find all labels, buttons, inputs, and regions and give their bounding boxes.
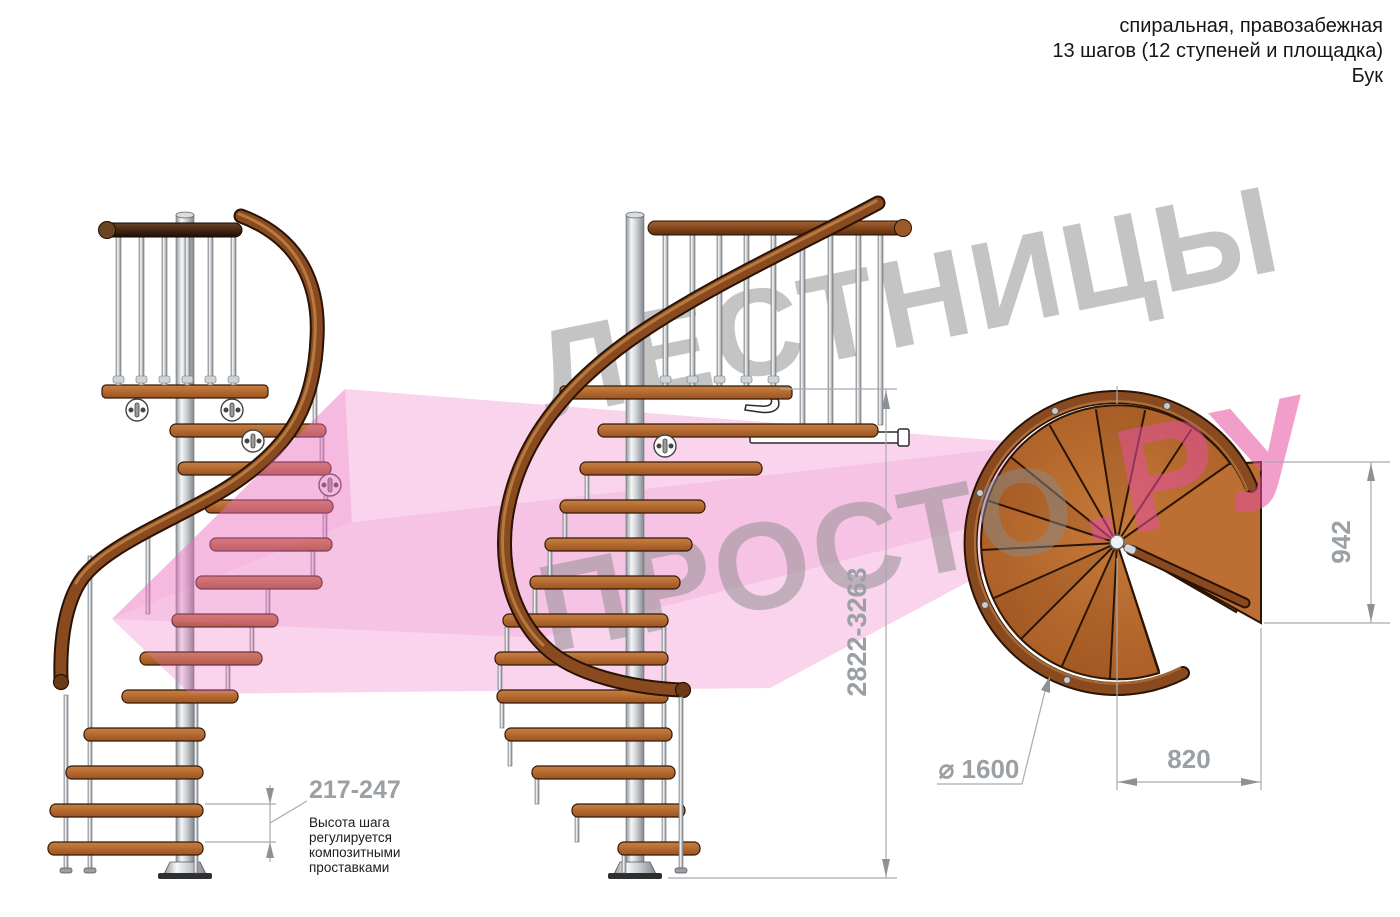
total-height-value: 2822-3263 [842, 567, 872, 696]
description-type: спиральная, правозабежная [1052, 14, 1383, 39]
platform-top-rail [648, 221, 906, 235]
note-line: композитными [309, 845, 400, 860]
dimension-diameter: ⌀ 1600 [937, 676, 1050, 784]
description-steps: 13 шагов (12 ступеней и площадка) [1052, 39, 1383, 64]
pole-base-flange [614, 862, 656, 874]
pole-top-cap [626, 212, 644, 218]
note-line: регулируется [309, 830, 392, 845]
pole-base-flange [164, 862, 206, 874]
drawing-page: ЛЕСТНИЦЫ ПРОСТО.РУ [0, 0, 1400, 917]
product-description: спиральная, правозабежная 13 шагов (12 с… [1052, 14, 1383, 89]
pole-top-cap [176, 212, 194, 218]
baluster-foot [84, 868, 96, 873]
platform-depth-value: 942 [1326, 520, 1356, 563]
description-material: Бук [1052, 64, 1383, 89]
staircase-technical-drawing: ЛЕСТНИЦЫ ПРОСТО.РУ [0, 0, 1400, 917]
pole-base-plate [158, 873, 212, 879]
note-line: Высота шага [309, 815, 390, 830]
platform-board [560, 386, 792, 399]
step-width-value: 820 [1167, 744, 1210, 774]
rail-end-cap [99, 222, 116, 239]
step-height-note: Высота шагарегулируетсякомпозитнымипрост… [309, 815, 400, 875]
diameter-value: ⌀ 1600 [939, 754, 1020, 784]
rail-end-cap [895, 220, 912, 237]
baluster [679, 697, 683, 868]
note-line: проставками [309, 860, 389, 875]
platform-railing [99, 222, 243, 386]
step-height-value: 217-247 [309, 776, 401, 804]
baluster [88, 556, 92, 870]
platform-board [102, 385, 268, 398]
baluster-foot [675, 868, 687, 873]
pole-base-plate [608, 873, 662, 879]
platform-top-rail [104, 223, 242, 237]
callout-step-height: 217-247 Высота шагарегулируетсякомпозитн… [205, 776, 401, 875]
baluster-foot [60, 868, 72, 873]
connector-disc [654, 435, 676, 457]
